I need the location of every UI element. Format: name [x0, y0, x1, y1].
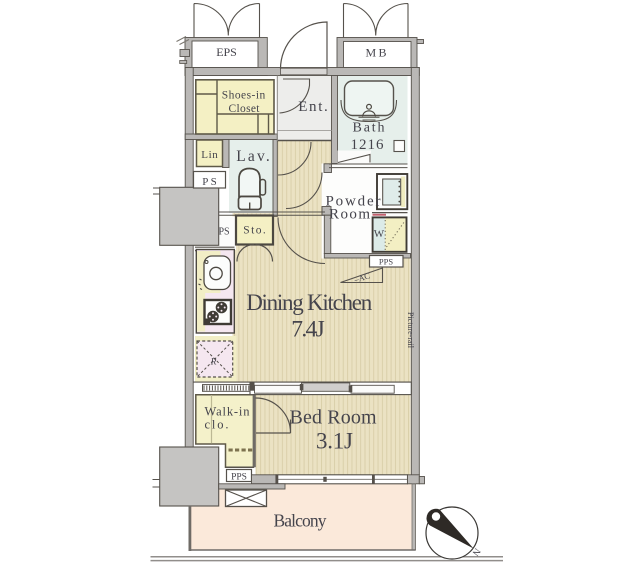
- svg-text:W: W: [374, 228, 385, 240]
- svg-text:Balcony: Balcony: [274, 511, 327, 531]
- svg-text:R: R: [210, 358, 217, 368]
- svg-text:7.4J: 7.4J: [291, 317, 325, 343]
- svg-text:1216: 1216: [351, 137, 385, 153]
- svg-text:Bed Room: Bed Room: [290, 407, 377, 429]
- svg-text:Lin: Lin: [201, 149, 218, 161]
- svg-text:Picture-rail: Picture-rail: [406, 312, 415, 349]
- svg-text:Walk-in: Walk-in: [205, 405, 251, 419]
- svg-text:Ent.: Ent.: [298, 99, 328, 115]
- svg-text:3.1J: 3.1J: [316, 429, 353, 454]
- svg-text:PPS: PPS: [231, 473, 247, 483]
- svg-text:PPS: PPS: [379, 257, 393, 267]
- svg-text:PS: PS: [218, 227, 229, 238]
- svg-text:Dining Kitchen: Dining Kitchen: [246, 290, 373, 315]
- svg-text:clo.: clo.: [205, 418, 229, 432]
- svg-text:Bath: Bath: [353, 121, 385, 136]
- svg-text:Room: Room: [329, 206, 370, 222]
- svg-text:Closet: Closet: [229, 103, 261, 115]
- svg-text:EPS: EPS: [216, 45, 237, 59]
- svg-text:Shoes-in: Shoes-in: [222, 90, 266, 102]
- svg-text:MB: MB: [366, 46, 387, 60]
